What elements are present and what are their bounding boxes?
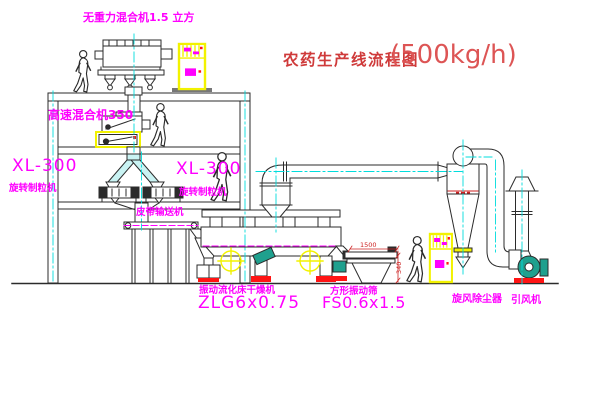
- label-granulator-right-model: XL-300: [176, 161, 241, 178]
- label-highspeed-mixer: 高速混合机350: [48, 109, 133, 121]
- worker-figure-roof: [74, 51, 91, 92]
- granulator-right: [143, 182, 183, 203]
- control-cabinet-bottom: [430, 234, 452, 282]
- label-belt-conveyor: 皮带输送机: [136, 208, 184, 218]
- fluid-bed-dryer: [201, 210, 341, 282]
- label-dryer-model: ZLG6x0.75: [198, 295, 300, 312]
- label-granulator-left-name: 旋转制粒机: [9, 184, 57, 194]
- dim-screen-length: 1500: [360, 241, 377, 249]
- label-induced-draft-fan: 引风机: [511, 296, 541, 306]
- process-flow-diagram: 1500 340 无重力混合机1.5 立方 农药生产线流程图 (500kg/h)…: [0, 0, 600, 403]
- label-gravity-mixer: 无重力混合机1.5 立方: [83, 12, 194, 23]
- label-cyclone: 旋风除尘器: [452, 295, 502, 305]
- y-splitter-pipe: [108, 154, 159, 182]
- label-screen-model: FS0.6x1.5: [322, 295, 406, 311]
- belt-conveyor: [124, 222, 198, 283]
- exhaust-duct: [260, 162, 452, 217]
- label-granulator-left-model: XL-300: [12, 158, 77, 175]
- control-cabinet-top: [179, 44, 205, 89]
- dim-screen-height: 340: [395, 262, 403, 274]
- vibrating-screen: [331, 246, 397, 283]
- diagram-title-capacity: (500kg/h): [390, 42, 517, 68]
- granulator-left: [99, 182, 139, 203]
- label-granulator-right-name: 旋转制粒机: [179, 188, 227, 198]
- worker-figure-ground: [407, 237, 425, 282]
- worker-figure-floor2: [151, 104, 168, 146]
